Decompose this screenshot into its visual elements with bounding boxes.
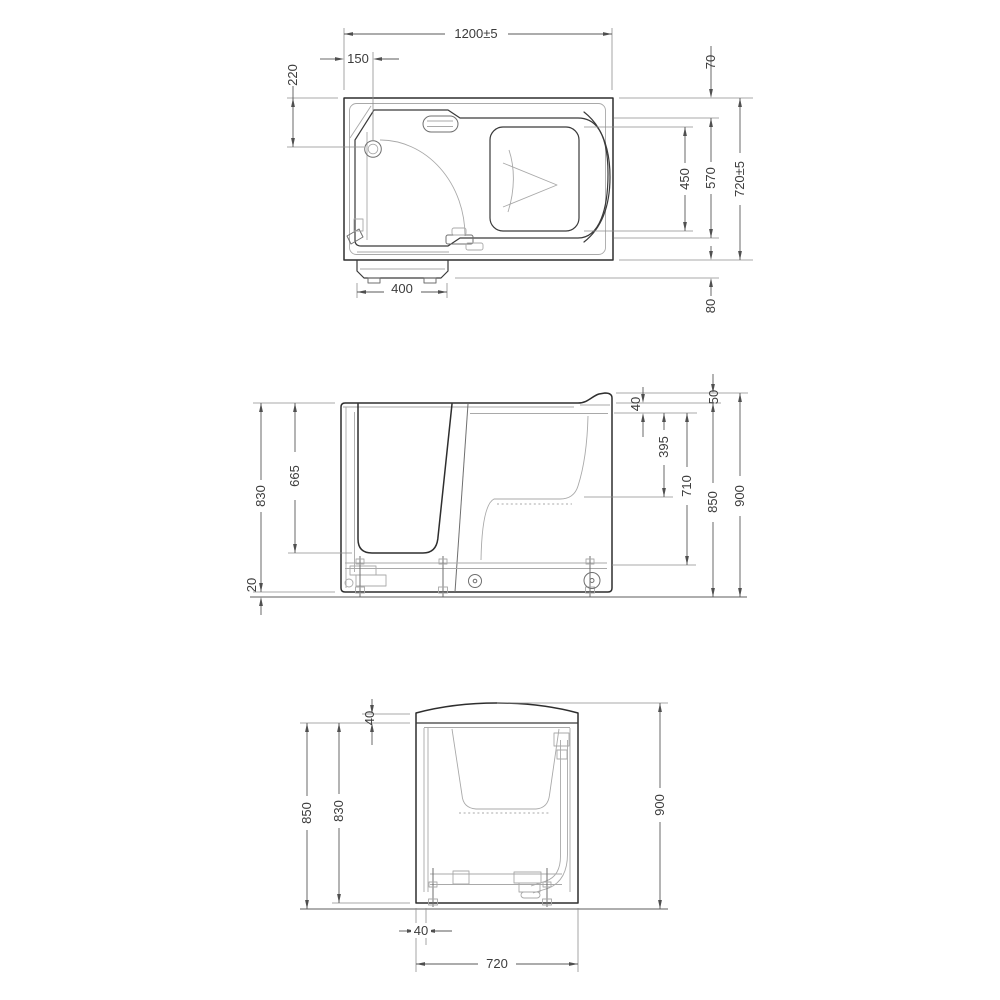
dim-basin-width: 570: [703, 167, 718, 189]
dim-overall-width-side: 720: [486, 956, 508, 971]
dim-rim-to-seat: 395: [656, 436, 671, 458]
dim-back-ledge: 70: [703, 55, 718, 69]
side-view: 40 850 830 900 40 720: [299, 699, 668, 972]
technical-drawing: 1200±5 150 220 70 570 450 720±5: [0, 0, 1000, 1000]
dim-rim-to-base: 830: [253, 485, 268, 507]
dim-seat-depth: 450: [677, 168, 692, 190]
dim-door-step: 80: [703, 299, 718, 313]
door-step: [357, 260, 448, 283]
dim-door-step-width: 400: [391, 281, 413, 296]
dim-tap-from-left: 150: [347, 51, 369, 66]
tub-outline-front: [341, 393, 612, 592]
dim-overall-length: 1200±5: [454, 26, 497, 41]
dim-foot-inset: 40: [414, 923, 428, 938]
dim-rim-thickness: 40: [628, 397, 643, 411]
dim-backrest-lip: 50: [706, 390, 721, 404]
dim-overall-width: 720±5: [732, 161, 747, 197]
dim-top-edge-to-rim: 40: [362, 711, 377, 725]
top-view: 1200±5 150 220 70 570 450 720±5: [285, 26, 753, 313]
dim-overall-height: 900: [732, 485, 747, 507]
dim-tap-from-front: 220: [285, 64, 300, 86]
dim-base-clearance: 20: [244, 578, 259, 592]
dim-overall-height-side: 900: [652, 794, 667, 816]
dim-rim-to-door-sill: 665: [287, 465, 302, 487]
dim-rim-height: 850: [705, 491, 720, 513]
dim-rim-to-base-side: 830: [331, 800, 346, 822]
dim-rim-height-side: 850: [299, 802, 314, 824]
front-view: 830 665 20 40 395 710 850: [244, 374, 748, 615]
tub-outline-top: [344, 98, 613, 260]
dim-inner-depth: 710: [679, 475, 694, 497]
